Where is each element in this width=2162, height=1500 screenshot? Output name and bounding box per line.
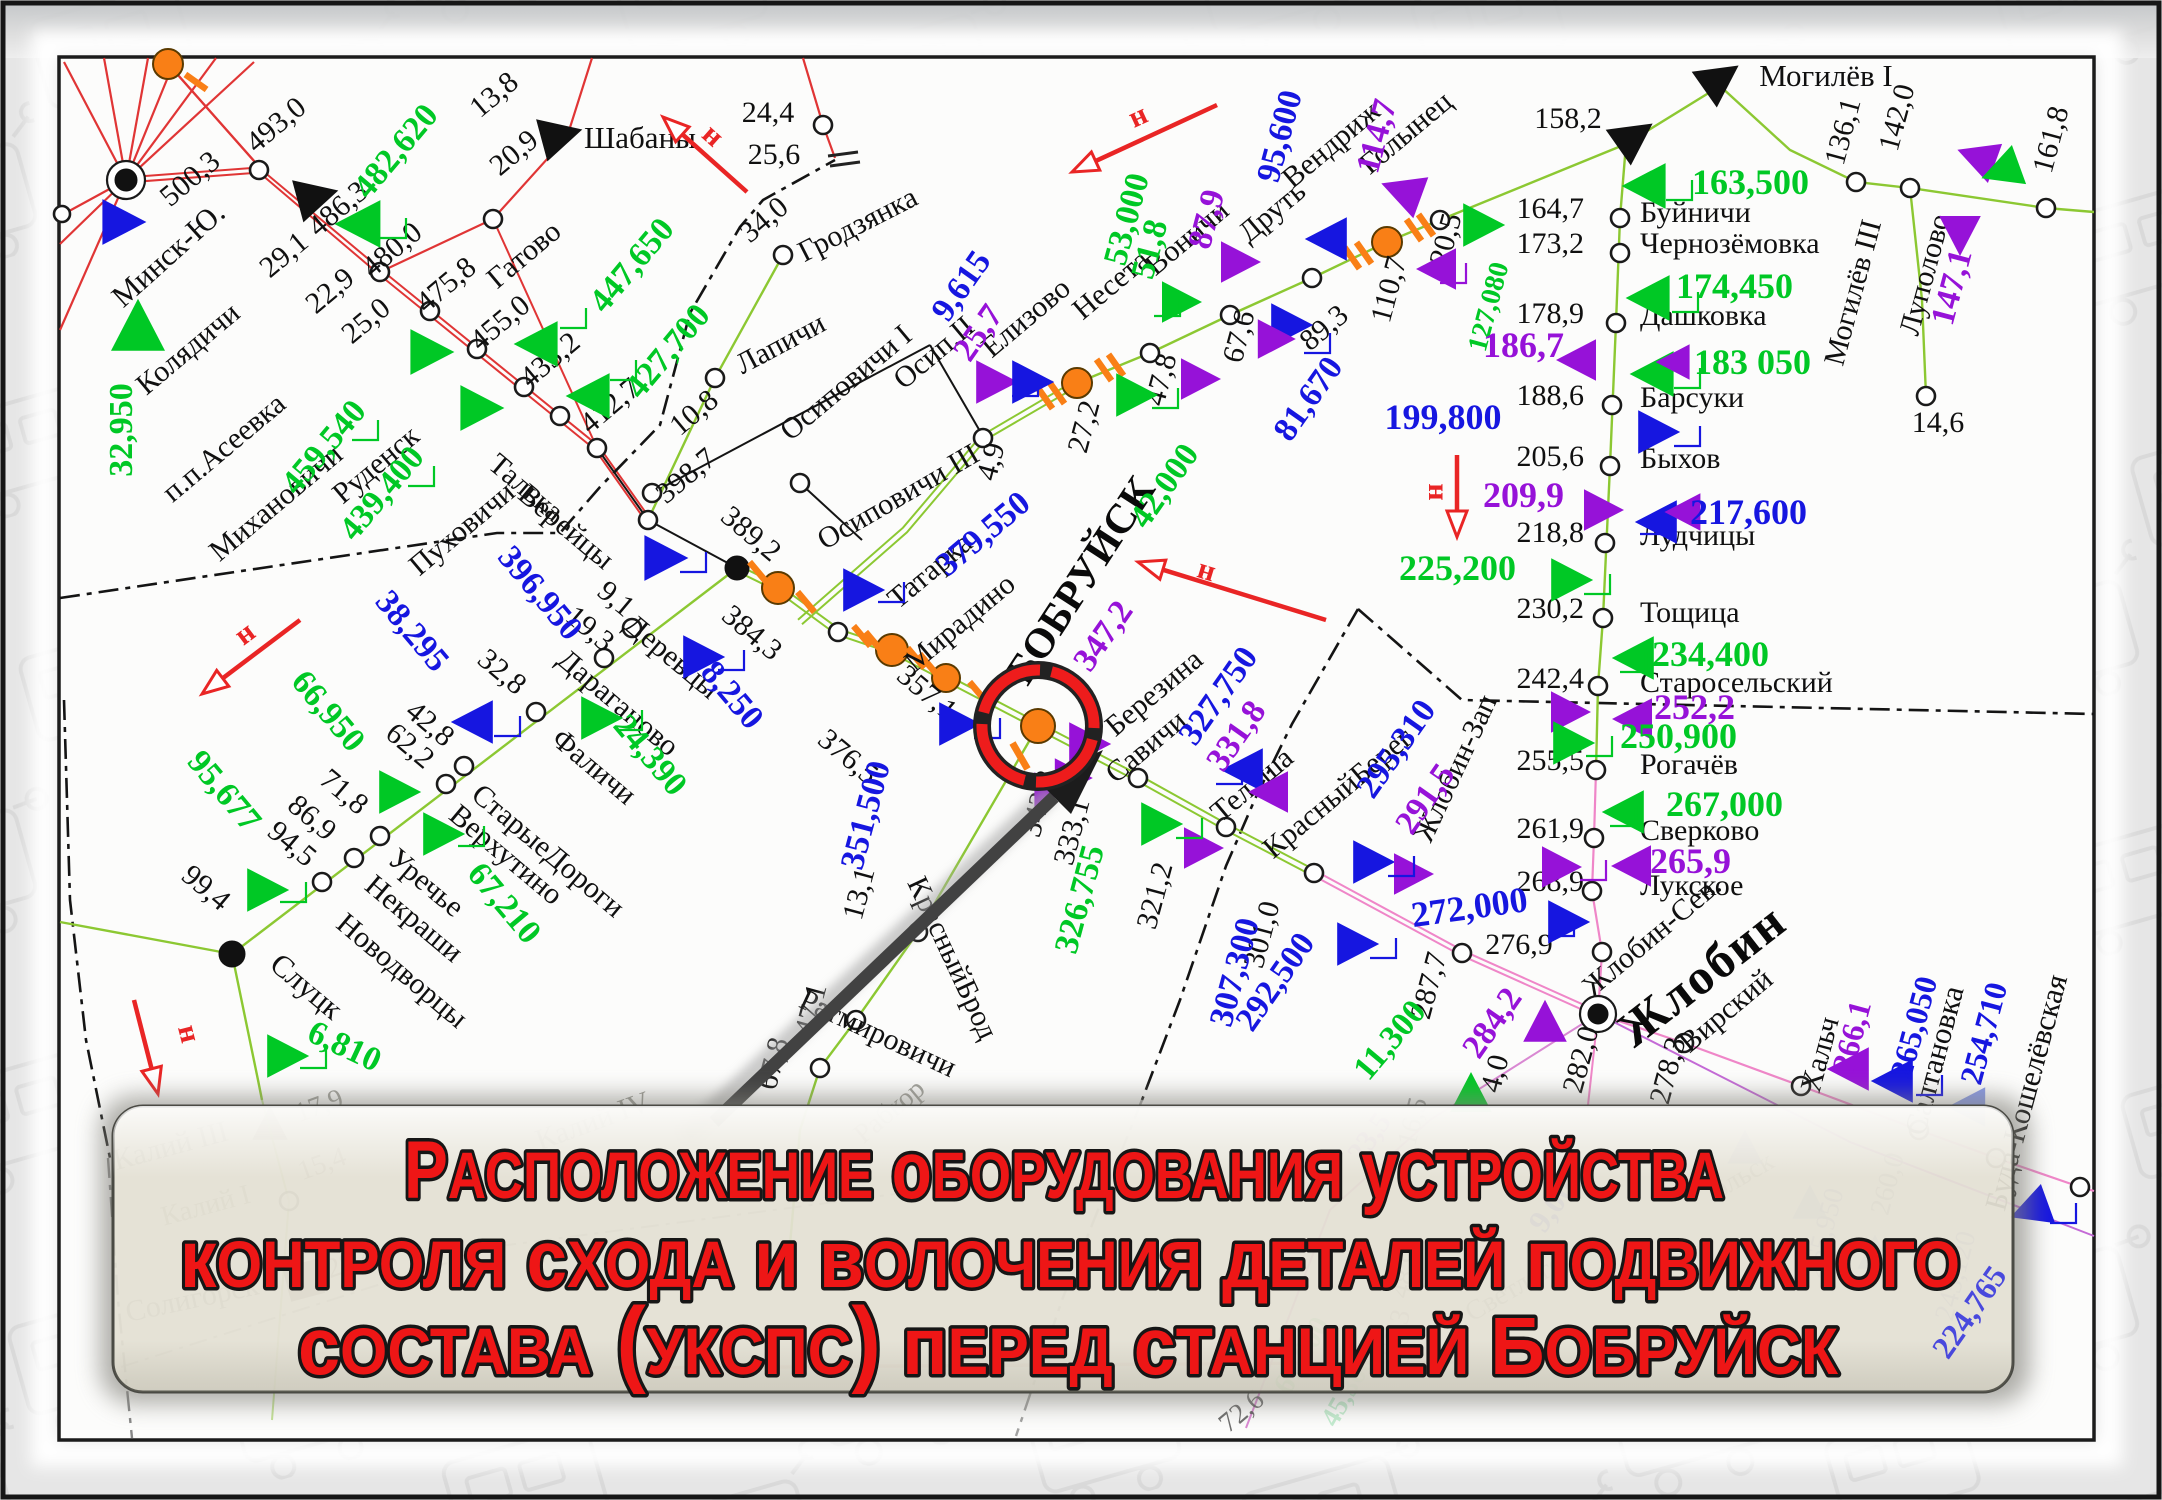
svg-text:Тощица: Тощица xyxy=(1640,596,1740,629)
svg-text:205,6: 205,6 xyxy=(1517,440,1585,473)
svg-text:н: н xyxy=(1422,483,1455,500)
svg-text:183 050: 183 050 xyxy=(1694,342,1811,382)
svg-text:РАСПОЛОЖЕНИЕ оБОРУДОВАНИЯ уСТР: РАСПОЛОЖЕНИЕ оБОРУДОВАНИЯ уСТРОЙСТВА xyxy=(404,1125,1724,1216)
svg-text:234,400: 234,400 xyxy=(1652,634,1769,674)
svg-text:267,000: 267,000 xyxy=(1666,784,1783,824)
svg-text:кОНТРОЛЯ сХОДА и вОЛОЧЕНИЯ дЕТ: кОНТРОЛЯ сХОДА и вОЛОЧЕНИЯ дЕТАЛЕЙ пОДВИ… xyxy=(180,1214,1960,1305)
svg-text:174,450: 174,450 xyxy=(1676,266,1793,306)
svg-text:242,4: 242,4 xyxy=(1517,662,1585,695)
svg-text:261,9: 261,9 xyxy=(1517,812,1585,845)
svg-text:230,2: 230,2 xyxy=(1517,592,1585,625)
svg-text:225,200: 225,200 xyxy=(1399,548,1516,588)
svg-text:188,6: 188,6 xyxy=(1517,379,1585,412)
svg-text:209,9: 209,9 xyxy=(1483,475,1564,515)
svg-text:14,6: 14,6 xyxy=(1912,406,1965,439)
svg-text:276,9: 276,9 xyxy=(1485,928,1553,961)
svg-text:24,4: 24,4 xyxy=(742,96,795,129)
svg-text:32,950: 32,950 xyxy=(103,383,140,477)
svg-text:158,2: 158,2 xyxy=(1534,102,1602,135)
svg-text:265,9: 265,9 xyxy=(1650,841,1731,881)
svg-text:Могилёв I: Могилёв I xyxy=(1759,58,1893,93)
svg-text:Чернозёмовка: Чернозёмовка xyxy=(1640,227,1820,260)
svg-text:218,8: 218,8 xyxy=(1517,516,1585,549)
svg-text:186,7: 186,7 xyxy=(1483,325,1564,365)
svg-text:25,6: 25,6 xyxy=(748,138,801,171)
svg-text:164,7: 164,7 xyxy=(1517,192,1585,225)
svg-text:199,800: 199,800 xyxy=(1385,397,1502,437)
svg-text:217,600: 217,600 xyxy=(1690,492,1807,532)
svg-text:173,2: 173,2 xyxy=(1517,227,1585,260)
svg-text:252,2: 252,2 xyxy=(1654,687,1735,727)
svg-text:163,500: 163,500 xyxy=(1692,162,1809,202)
